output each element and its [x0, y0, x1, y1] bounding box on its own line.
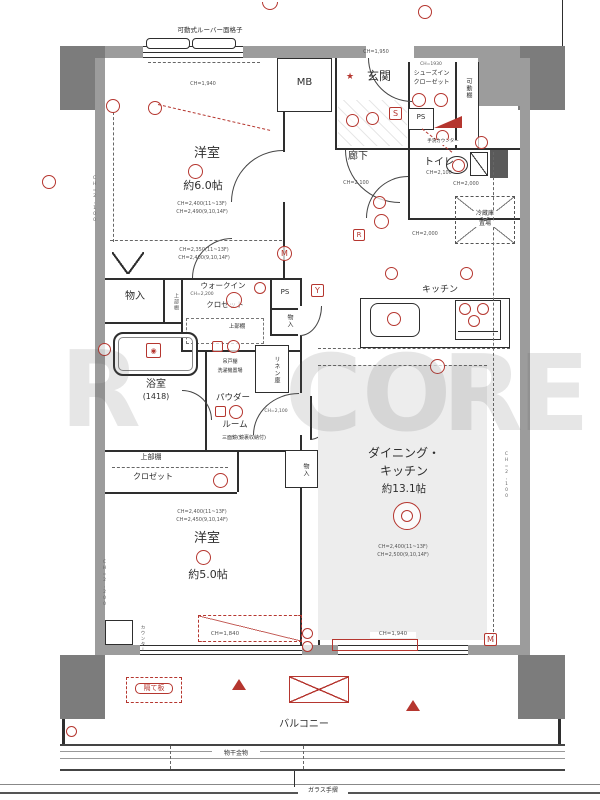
- linen-label: リネン庫: [264, 350, 279, 390]
- outlet-marker: [229, 405, 243, 419]
- louver-label: 可動式ルーバー面格子: [158, 27, 262, 34]
- storage1-label: 物入: [112, 292, 158, 302]
- partition-label: 隔て板: [135, 683, 173, 694]
- handwash-counter-label: 手洗カウンター: [414, 140, 472, 145]
- entrance-ch: CH=1,950: [352, 50, 400, 55]
- switch-marker: [215, 406, 226, 417]
- wic-shelf-label: 上部棚: [220, 325, 254, 331]
- outlet-marker: [430, 359, 445, 374]
- outlet-marker: [66, 726, 77, 737]
- wall-ch-right: CH=2,100: [498, 448, 508, 504]
- remote-marker: R: [353, 229, 365, 241]
- window-ch-br: CH=1,940: [370, 632, 416, 638]
- sink-marker: [387, 312, 401, 326]
- movable-shelf-label: 可動棚: [459, 66, 471, 110]
- balcony-label: バルコニー: [270, 720, 338, 730]
- counter-label: カウンター: [134, 622, 144, 656]
- door-arc-bath: [182, 390, 212, 420]
- wall-line: [105, 278, 302, 280]
- folding-door: [112, 252, 144, 274]
- entrance-label: 玄関: [356, 70, 402, 82]
- wall: [520, 58, 530, 655]
- bath-size: (1418): [138, 393, 174, 401]
- hall-label: 廊下: [342, 152, 374, 162]
- storage3-label: 物入: [294, 456, 308, 484]
- dk-label-2: キッチン: [372, 465, 436, 477]
- sic-ch: CH=1930: [410, 63, 452, 68]
- outlet-marker: [226, 292, 242, 308]
- fridge-label-1: 冷蔵庫: [466, 211, 504, 217]
- ceiling-dash: [113, 112, 114, 242]
- ps2-label: PS: [275, 289, 295, 296]
- wall-line: [478, 62, 479, 148]
- western1-ch-a: CH=2,400(11~13F): [166, 202, 238, 207]
- annotation-dash: [158, 104, 270, 131]
- ceiling-dash: [110, 240, 282, 241]
- annotation-rect: [332, 639, 418, 651]
- outlet-marker: [346, 114, 359, 127]
- wall-line: [105, 492, 237, 494]
- powder-ch: CH=2,100: [257, 410, 295, 415]
- powder-label-1: パウダー: [210, 394, 256, 403]
- railing-tick: [303, 746, 304, 769]
- outlet-marker: [374, 214, 389, 229]
- western1-label: 洋室: [184, 147, 230, 160]
- dk-label-1: ダイニング・: [360, 447, 448, 459]
- wall-line: [455, 62, 457, 150]
- western2-ch-a: CH=2,400(11~13F): [166, 510, 238, 515]
- switch-marker: [212, 341, 223, 352]
- escape-hatch: [289, 676, 349, 703]
- dk-border-dash: [318, 365, 487, 366]
- burner-icon: [477, 303, 489, 315]
- grille-hatch: [148, 62, 260, 63]
- pipe-space-label: PS: [410, 114, 432, 121]
- outlet-marker: [475, 136, 488, 149]
- kitchen-label: キッチン: [418, 286, 462, 295]
- balcony-side: [558, 719, 561, 746]
- wall-line: [335, 58, 337, 150]
- ch2000-a: CH=2,000: [446, 182, 486, 187]
- closet-label: クロゼット: [126, 473, 180, 481]
- marker-m2: M: [484, 633, 497, 646]
- desk-counter: [105, 620, 133, 645]
- light-marker: [262, 2, 278, 10]
- burner-icon: [459, 303, 471, 315]
- switch-marker: S: [389, 107, 402, 120]
- outlet-marker: [98, 343, 111, 356]
- grill-line: [458, 331, 498, 332]
- balcony-side: [62, 719, 65, 746]
- wall-line: [270, 334, 300, 336]
- annotation-dash: [198, 615, 302, 642]
- closet-shelf-label: 上部棚: [126, 454, 176, 461]
- storage2-label: 物入: [278, 309, 292, 333]
- burner-icon: [468, 315, 480, 327]
- triangle-marker: [406, 700, 420, 711]
- pillar: [60, 655, 105, 719]
- outlet-marker: [412, 93, 426, 107]
- western1-size: 約6.0帖: [170, 180, 236, 191]
- mirror-label: 三面鏡(鏡裏収納付): [202, 436, 286, 441]
- drain-marker: ◉: [146, 343, 161, 358]
- western2-size: 約5.0帖: [178, 569, 238, 580]
- western2-ch-b: CH=2,450(9,10,14F): [166, 518, 238, 523]
- fridge-label-2: 置場: [472, 221, 498, 227]
- floorplan-page: { "rooms": { "western1": {"name":"洋室","s…: [0, 0, 600, 800]
- step-wedge: [434, 116, 462, 128]
- outlet-marker: [452, 159, 465, 172]
- door-arc-storage2: [300, 306, 322, 336]
- rail-leader: [294, 771, 295, 787]
- western1-ch-b: CH=2,490(9,10,14F): [166, 210, 238, 215]
- window-ch-bl: CH=1,840: [202, 632, 248, 638]
- wic-label-2: クロゼット: [198, 301, 252, 309]
- laundry-label: 洗濯機置場: [204, 369, 256, 374]
- outlet-marker: [385, 267, 398, 280]
- sic-label-1: シューズイン: [408, 71, 455, 77]
- lower-line: [0, 784, 600, 785]
- louver-panel: [146, 38, 190, 49]
- building-outline: [562, 0, 563, 46]
- powder-label-2: ルーム: [216, 421, 254, 430]
- counter-dash: [318, 348, 510, 349]
- western1-ch-d: CH=2,400(9,10,14F): [168, 256, 240, 261]
- outlet-marker: [42, 175, 56, 189]
- meter-box-label: MB: [287, 78, 322, 88]
- star-icon: ★: [344, 73, 356, 82]
- outlet-marker: [213, 473, 228, 488]
- wic-label-1: ウォークイン: [192, 282, 254, 290]
- marker-m1: M: [277, 246, 292, 261]
- outlet-marker: [373, 196, 386, 209]
- railing-line: [60, 744, 565, 746]
- hall-ch: CH=2,100: [336, 181, 376, 186]
- railing-line: [60, 758, 565, 759]
- wic-ch: CH=2,200: [184, 293, 220, 298]
- outlet-marker: [254, 282, 266, 294]
- railing-tick: [170, 746, 171, 769]
- wall-line: [237, 450, 239, 492]
- storage1-shelf-label: 上部棚: [165, 284, 178, 320]
- wall-line: [105, 322, 183, 324]
- wall: [478, 58, 520, 106]
- sic-label-2: クローゼット: [408, 80, 455, 86]
- outlet-marker: [227, 340, 240, 353]
- toilet-tank: [470, 152, 488, 176]
- western2-label: 洋室: [184, 532, 230, 545]
- railing-line: [60, 751, 565, 752]
- marker-y: Y: [311, 284, 324, 297]
- triangle-marker: [232, 679, 246, 690]
- western1-window-ch: CH=1,940: [178, 82, 228, 87]
- outlet-marker: [106, 99, 120, 113]
- wall-ch-left-top: CH=2,100: [86, 172, 96, 228]
- marker-m1-letter: M: [281, 249, 288, 258]
- room-marker: [188, 164, 203, 179]
- window: [140, 645, 302, 655]
- rail-label: ガラス手摺: [298, 788, 348, 794]
- pillar: [518, 655, 565, 719]
- outlet-marker: [366, 112, 379, 125]
- louver-panel: [192, 38, 236, 49]
- wall-line: [105, 450, 302, 452]
- room-marker: [196, 550, 211, 565]
- outlet-marker: [148, 101, 162, 115]
- outlet-marker: [434, 93, 448, 107]
- dk-ch-a: CH=2,400(11~13F): [364, 545, 442, 550]
- outlet-marker: [460, 267, 473, 280]
- dk-size: 約13.1帖: [374, 484, 434, 495]
- light-marker: [418, 5, 432, 19]
- dk-ch-b: CH=2,500(9,10,14F): [364, 553, 442, 558]
- closet-dash: [112, 467, 228, 468]
- bath-label: 浴室: [136, 380, 176, 390]
- ch2000-b: CH=2,000: [404, 232, 446, 237]
- cupboard-label: 吊戸棚: [214, 360, 246, 365]
- outlet-marker: [302, 628, 313, 639]
- outlet-marker: [302, 641, 313, 652]
- dk-marker-inner: [401, 510, 413, 522]
- door-arc-western1: [231, 150, 283, 202]
- plan-canvas: 可動式ルーバー面格子 MB ★ 玄関 CH=1,950 CH=1930: [0, 0, 600, 800]
- railing-line: [60, 769, 565, 771]
- hanger-label: 物干金物: [212, 751, 260, 757]
- western1-ch-c: CH=2,350(11~13F): [168, 248, 240, 253]
- wall-ch-left-bottom: CH=2,200: [96, 556, 106, 612]
